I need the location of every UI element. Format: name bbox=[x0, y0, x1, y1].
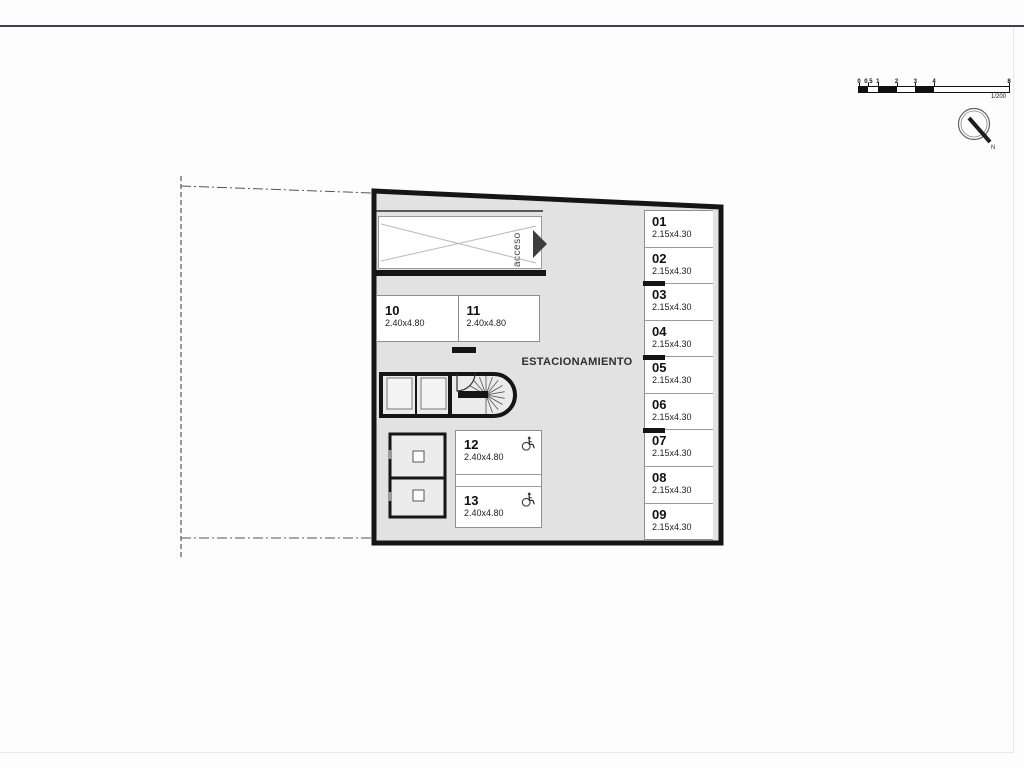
scale-bar: 00.512348 1/200 bbox=[858, 79, 1008, 101]
storage-room-1-column bbox=[413, 451, 424, 462]
parking-space-dimensions: 2.15x4.30 bbox=[652, 302, 713, 313]
scale-bar-segment bbox=[915, 87, 934, 92]
scale-bar-segment bbox=[868, 87, 877, 92]
north-compass: N bbox=[959, 109, 996, 152]
stair-tread-line bbox=[486, 377, 493, 395]
parking-space: 102.40x4.80 bbox=[377, 296, 459, 341]
parking-space-number: 06 bbox=[652, 397, 713, 412]
parking-accessible-12-13: 122.40x4.80132.40x4.80 bbox=[455, 430, 542, 528]
scale-bar-track: 00.512348 bbox=[858, 86, 1010, 93]
stair-tread-line bbox=[470, 386, 487, 396]
parking-space-dimensions: 2.15x4.30 bbox=[652, 485, 713, 496]
page-border-top bbox=[0, 25, 1024, 27]
parking-space-number: 10 bbox=[385, 303, 458, 318]
compass-north-label: N bbox=[991, 145, 995, 151]
structural-column bbox=[643, 281, 665, 286]
area-label: ESTACIONAMIENTO bbox=[506, 356, 648, 368]
parking-space-number: 07 bbox=[652, 433, 713, 448]
scale-ratio-label: 1/200 bbox=[991, 94, 1006, 100]
structural-column bbox=[643, 428, 665, 433]
parking-space: 022.15x4.30 bbox=[645, 248, 713, 285]
scale-bar-tick-label: 2 bbox=[895, 79, 898, 85]
parking-space: 082.15x4.30 bbox=[645, 467, 713, 504]
storage-room-2 bbox=[390, 478, 445, 517]
elevator-shaft-1 bbox=[387, 378, 412, 409]
floor-plan-base bbox=[0, 0, 1024, 768]
core-outline bbox=[381, 374, 515, 416]
parking-space: 012.15x4.30 bbox=[645, 211, 713, 248]
storage-room-1 bbox=[390, 434, 445, 478]
parking-space-dimensions: 2.40x4.80 bbox=[467, 318, 540, 329]
scale-bar-segment bbox=[934, 87, 1009, 92]
ramp-label: acceso bbox=[512, 221, 523, 267]
parking-space: 042.15x4.30 bbox=[645, 321, 713, 358]
stair-tread-line bbox=[486, 386, 503, 396]
stair-tread-line bbox=[486, 395, 498, 410]
compass-needle bbox=[969, 118, 990, 142]
parking-space-dimensions: 2.15x4.30 bbox=[652, 375, 713, 386]
parking-space-number: 01 bbox=[652, 214, 713, 229]
stair-tread-line bbox=[486, 395, 493, 413]
floor-plan-details: N bbox=[0, 0, 1024, 768]
scale-bar-tick-label: 1 bbox=[876, 79, 879, 85]
parking-space-number: 02 bbox=[652, 251, 713, 266]
parking-space-number: 11 bbox=[467, 303, 540, 318]
scale-bar-segment bbox=[878, 87, 897, 92]
parking-space-dimensions: 2.15x4.30 bbox=[652, 448, 713, 459]
page-border-right bbox=[1013, 27, 1014, 753]
scale-bar-tick-label: 8 bbox=[1007, 79, 1010, 85]
storage-room-2-column bbox=[413, 490, 424, 501]
parking-space: 092.15x4.30 bbox=[645, 504, 713, 540]
parking-space-dimensions: 2.15x4.30 bbox=[652, 229, 713, 240]
storage-room-2-door-mark bbox=[388, 492, 392, 501]
parking-space-dimensions: 2.15x4.30 bbox=[652, 339, 713, 350]
parking-space-dimensions: 2.15x4.30 bbox=[652, 522, 713, 533]
parking-space: 032.15x4.30 bbox=[645, 284, 713, 321]
parking-space: 112.40x4.80 bbox=[459, 296, 540, 341]
parking-island-10-11: 102.40x4.80112.40x4.80 bbox=[376, 295, 540, 342]
spiral-stair-treads bbox=[470, 376, 505, 414]
scale-bar-tick-label: 3 bbox=[914, 79, 917, 85]
scale-bar-segment bbox=[897, 87, 916, 92]
scale-bar-segment bbox=[859, 87, 868, 92]
stair-tread-line bbox=[486, 380, 498, 395]
scale-bar-tick-label: 0 bbox=[857, 79, 860, 85]
compass-outer-ring bbox=[959, 109, 990, 140]
parking-space-dimensions: 2.15x4.30 bbox=[652, 412, 713, 423]
scale-bar-tick-label: 4 bbox=[932, 79, 935, 85]
parking-space-number: 03 bbox=[652, 287, 713, 302]
site-boundary-top-line bbox=[181, 186, 372, 193]
parking-space-dimensions: 2.15x4.30 bbox=[652, 266, 713, 277]
parking-space-number: 04 bbox=[652, 324, 713, 339]
parking-space: 052.15x4.30 bbox=[645, 357, 713, 394]
storage-room-1-door-mark bbox=[388, 450, 392, 459]
parking-right-column: 012.15x4.30022.15x4.30032.15x4.30042.15x… bbox=[644, 210, 713, 540]
door-swing bbox=[457, 373, 475, 391]
wheelchair-icon bbox=[520, 436, 535, 456]
stair-tread-line bbox=[480, 377, 487, 395]
parking-space-dimensions: 2.40x4.80 bbox=[385, 318, 458, 329]
stair-tread-line bbox=[474, 380, 486, 395]
wall-below-ramp bbox=[374, 270, 546, 276]
parking-space-number: 05 bbox=[652, 360, 713, 375]
parking-divider-strip bbox=[456, 474, 541, 487]
parking-space-accessible: 132.40x4.80 bbox=[456, 487, 541, 527]
parking-space-number: 08 bbox=[652, 470, 713, 485]
stair-tread-line bbox=[486, 395, 503, 405]
structural-column bbox=[452, 347, 476, 353]
wheelchair-icon bbox=[520, 492, 535, 512]
page-border-bottom bbox=[0, 752, 1014, 753]
parking-space-number: 09 bbox=[652, 507, 713, 522]
stair-tread-line bbox=[486, 395, 505, 398]
structural-column bbox=[643, 355, 665, 360]
elevator-shaft-2 bbox=[421, 378, 446, 409]
scale-bar-tick-label: 0.5 bbox=[864, 79, 872, 85]
stair-landing-bar bbox=[458, 391, 488, 398]
compass-inner-ring bbox=[961, 111, 987, 137]
parking-space: 062.15x4.30 bbox=[645, 394, 713, 431]
parking-space-accessible: 122.40x4.80 bbox=[456, 431, 541, 474]
parking-space: 072.15x4.30 bbox=[645, 430, 713, 467]
stair-tread-line bbox=[486, 392, 505, 395]
